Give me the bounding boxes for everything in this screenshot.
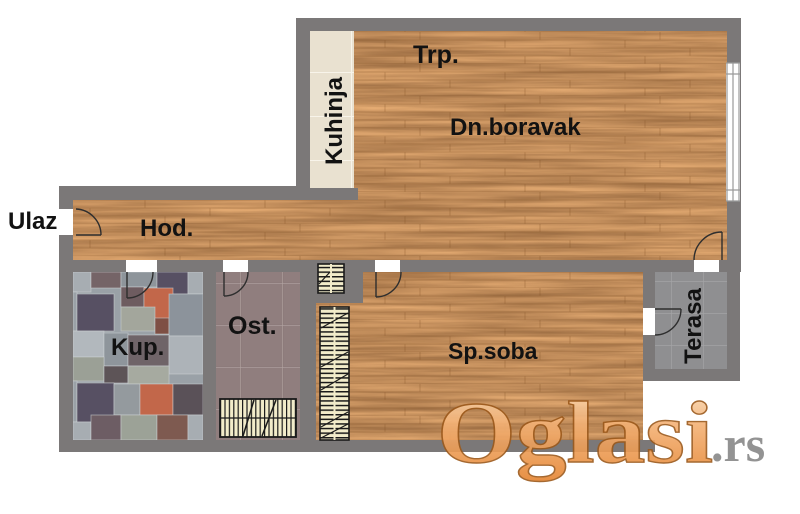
svg-text:Kuhinja: Kuhinja bbox=[321, 76, 348, 165]
svg-text:Dn.boravak: Dn.boravak bbox=[450, 114, 581, 141]
svg-text:Trp.: Trp. bbox=[413, 41, 459, 69]
svg-text:Ulaz: Ulaz bbox=[8, 208, 57, 235]
svg-text:Hod.: Hod. bbox=[140, 215, 193, 242]
svg-text:Oglasi: Oglasi bbox=[437, 385, 713, 482]
svg-text:Terasa: Terasa bbox=[680, 288, 707, 364]
svg-text:Sp.soba: Sp.soba bbox=[448, 338, 538, 364]
svg-text:Kup.: Kup. bbox=[111, 334, 164, 361]
svg-text:Ost.: Ost. bbox=[228, 312, 277, 340]
svg-text:.rs: .rs bbox=[711, 416, 765, 472]
